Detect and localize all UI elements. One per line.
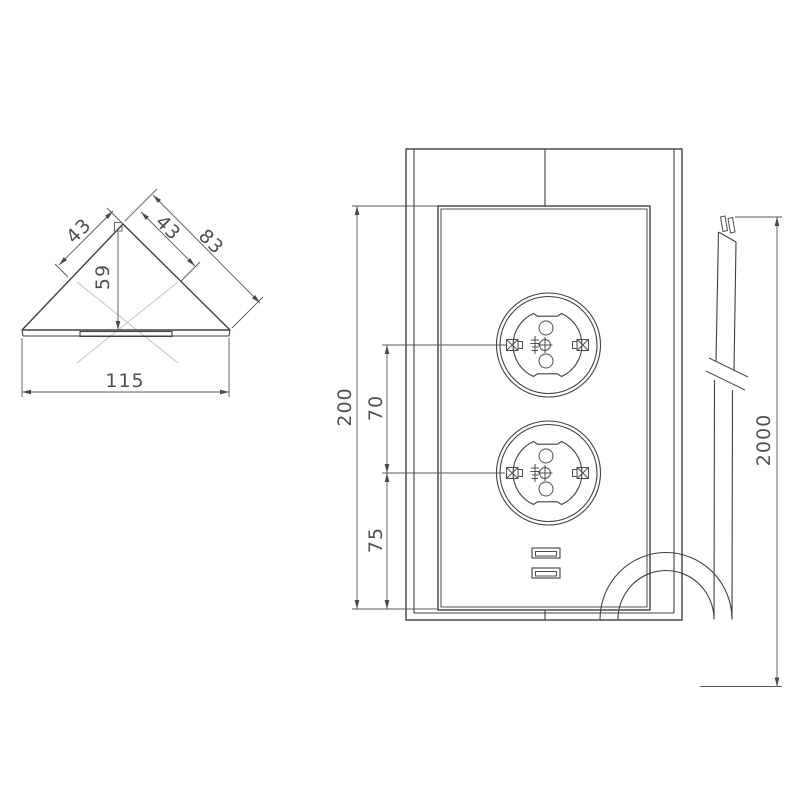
stripped-wires: [721, 216, 736, 233]
dim-label-width: 115: [105, 370, 144, 392]
usb-port-bottom: [532, 568, 560, 578]
dim-43-right: 43: [125, 189, 200, 281]
dim-label-bottom-offset: 75: [365, 527, 387, 553]
face-panel: [438, 206, 650, 610]
power-cable: 2000: [600, 216, 782, 687]
drawing-canvas: 59 115 43 43 83: [0, 0, 800, 800]
housing: [406, 149, 682, 620]
usb-port-top: [532, 548, 560, 558]
dim-label-edge-outer: 83: [194, 225, 228, 259]
dim-label-cable-length: 2000: [753, 414, 775, 466]
dim-2000: 2000: [700, 217, 782, 687]
top-view: 59 115 43 43 83: [22, 189, 263, 397]
cable-break-icon: [706, 358, 748, 390]
countertop-corner-lines: [77, 282, 178, 363]
dim-label-edge-right: 43: [151, 211, 185, 245]
dim-115: 115: [22, 338, 229, 397]
schuko-socket-bottom: [497, 421, 601, 525]
front-view: 200 70 75: [334, 149, 682, 620]
dim-70: 70: [365, 345, 506, 473]
dim-label-edge-left: 43: [62, 214, 96, 248]
dim-label-height: 200: [334, 387, 356, 426]
dim-75: 75: [365, 473, 389, 609]
dim-label-depth: 59: [92, 264, 114, 290]
corner-socket-technical-drawing: 59 115 43 43 83: [0, 0, 800, 800]
schuko-socket-top: [497, 293, 601, 397]
dim-label-socket-spacing: 70: [365, 395, 387, 421]
